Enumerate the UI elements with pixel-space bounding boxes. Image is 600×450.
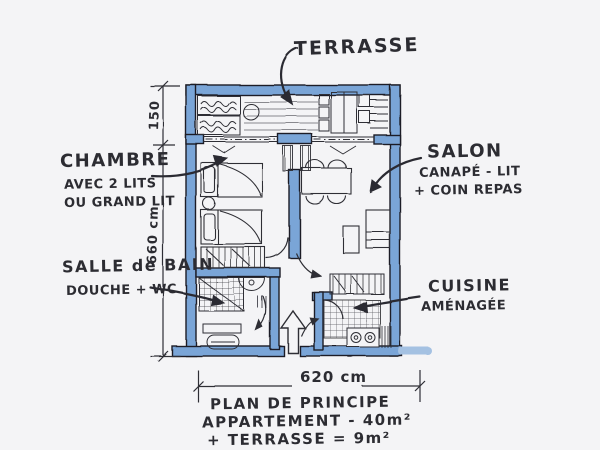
bedside-table bbox=[203, 198, 215, 210]
dimension-plan-width: 620 cm bbox=[300, 368, 367, 386]
casement-mark-left bbox=[213, 146, 235, 153]
label-salon: SALON bbox=[427, 140, 503, 162]
label-salon-desc1: CANAPÉ - LIT bbox=[419, 164, 521, 181]
dining-table bbox=[302, 168, 351, 194]
tv-stand bbox=[343, 226, 359, 253]
label-salon-desc2: + COIN REPAS bbox=[414, 182, 523, 199]
wall-hatch-left bbox=[283, 146, 293, 171]
toilet bbox=[203, 324, 241, 349]
wall-bottom-left bbox=[172, 346, 284, 356]
label-salle-de-bain-desc1: DOUCHE + WC bbox=[66, 282, 177, 299]
salon-furniture bbox=[302, 160, 390, 253]
marker-overrun bbox=[398, 347, 432, 355]
chair-top-2 bbox=[328, 160, 346, 168]
bathroom-fixtures bbox=[199, 278, 266, 349]
shower bbox=[199, 278, 244, 311]
label-terrasse: TERRASSE bbox=[294, 34, 420, 60]
label-chambre-desc1: AVEC 2 LITS bbox=[64, 176, 157, 193]
stove bbox=[347, 328, 379, 347]
sun-lounger-1 bbox=[198, 96, 240, 115]
window-wall-accent-center bbox=[278, 134, 312, 144]
window-wall-accent-left bbox=[186, 135, 204, 144]
door-arc-chambre bbox=[266, 237, 288, 258]
caption-line3: + TERRASSE = 9m² bbox=[207, 429, 391, 450]
window-wall-accent-right bbox=[374, 135, 400, 144]
chamber-furniture bbox=[201, 163, 265, 268]
deck-lines bbox=[244, 102, 318, 130]
label-cuisine-desc1: AMÉNAGÉE bbox=[421, 298, 506, 314]
dimension-plan-height: 660 cm bbox=[145, 205, 162, 264]
terrace-dining-set bbox=[319, 92, 388, 133]
bed-2 bbox=[201, 210, 262, 244]
chair-bottom-2 bbox=[328, 196, 346, 204]
sun-lounger-2 bbox=[198, 116, 240, 135]
label-salle-de-bain: SALLE de BAIN bbox=[62, 255, 214, 277]
caption-line1: PLAN DE PRINCIPE bbox=[210, 393, 391, 414]
chair-bottom-1 bbox=[306, 196, 324, 204]
label-cuisine: CUISINE bbox=[428, 275, 511, 295]
apartment-walls bbox=[172, 85, 432, 356]
wall-chambre-salon bbox=[289, 170, 300, 258]
casement-mark-right bbox=[330, 146, 356, 154]
kitchen-fixtures bbox=[324, 274, 391, 348]
dimension-terrace-depth: 150 bbox=[147, 100, 163, 131]
bed-1 bbox=[201, 163, 262, 197]
floor-plan-sketch-page: TERRASSE CHAMBRE AVEC 2 LITS OU GRAND LI… bbox=[0, 0, 600, 450]
wall-right bbox=[390, 85, 400, 356]
sofa-bed bbox=[366, 210, 390, 248]
kitchen-upper-unit bbox=[330, 274, 384, 294]
wall-bathroom-right bbox=[270, 277, 279, 349]
label-chambre: CHAMBRE bbox=[60, 149, 171, 172]
wall-left bbox=[186, 85, 196, 356]
terrace-furniture bbox=[198, 92, 388, 135]
wall-top bbox=[186, 85, 400, 95]
terrace-round-table bbox=[243, 104, 259, 120]
